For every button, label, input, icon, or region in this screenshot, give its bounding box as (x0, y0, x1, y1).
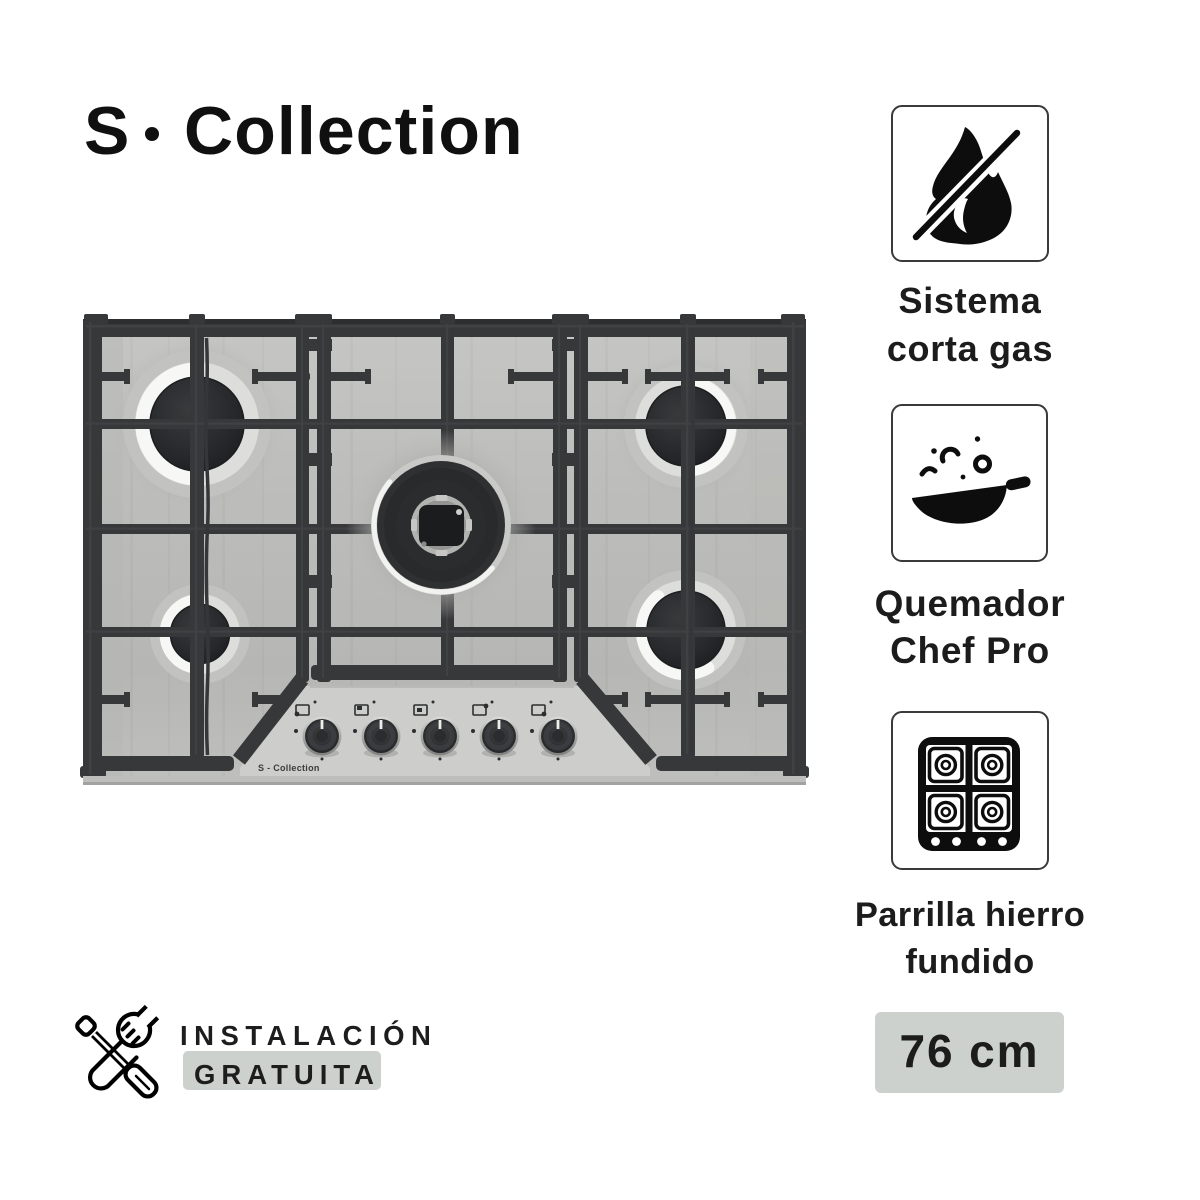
svg-text:S - Collection: S - Collection (258, 763, 320, 773)
